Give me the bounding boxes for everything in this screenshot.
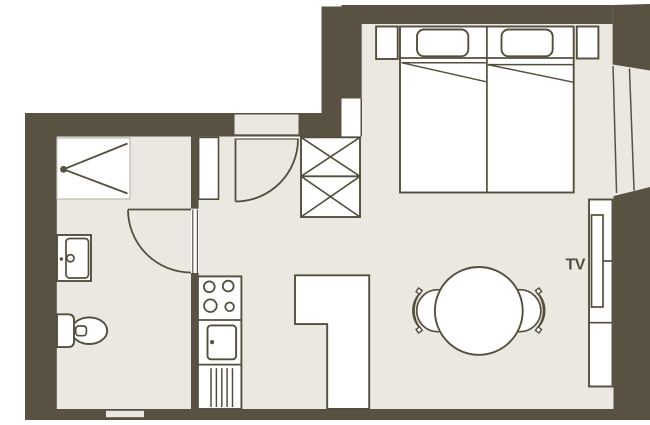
svg-text:TV: TV — [565, 257, 585, 274]
